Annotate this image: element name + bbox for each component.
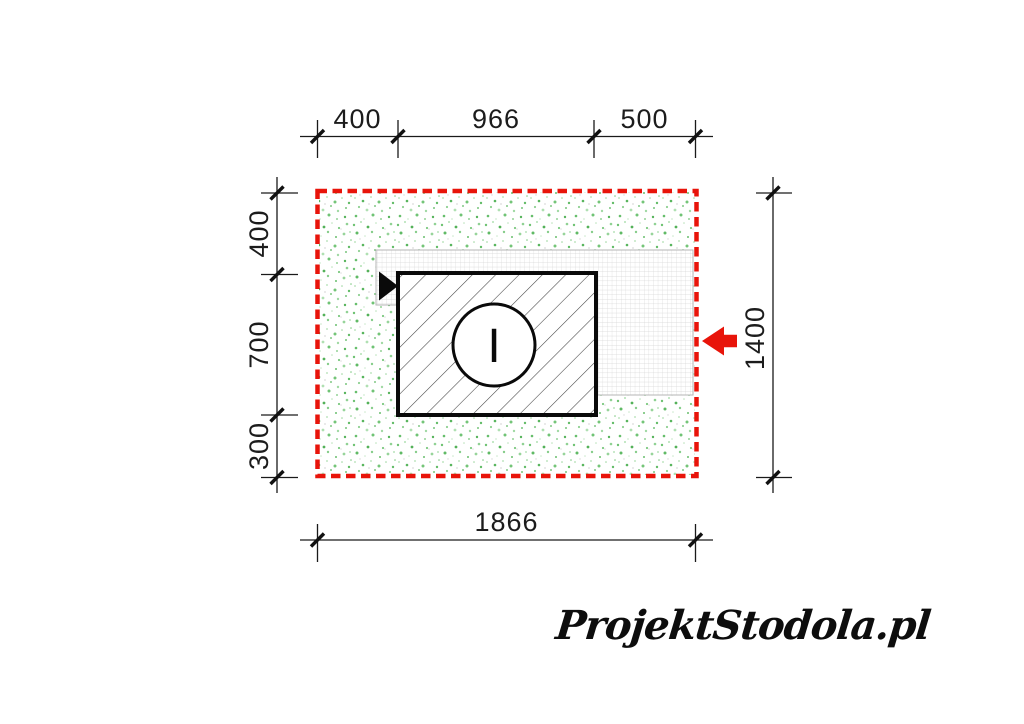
- projekt-stodola-logo: ProjektStodola.pl: [585, 594, 902, 656]
- dim-left-300: 300: [244, 422, 274, 470]
- circle-mark-label: I: [487, 320, 500, 373]
- dim-left-400: 400: [244, 209, 274, 257]
- red-arrow-left-icon: [702, 327, 737, 356]
- dim-left-700: 700: [244, 320, 274, 368]
- dim-top-500: 500: [620, 104, 668, 134]
- dim-right-1400: 1400: [740, 306, 770, 370]
- dim-top-966: 966: [472, 104, 520, 134]
- technical-drawing-page: I 400 966 500: [0, 0, 1024, 724]
- dim-bottom-1866: 1866: [474, 507, 538, 537]
- dim-top-400: 400: [333, 104, 381, 134]
